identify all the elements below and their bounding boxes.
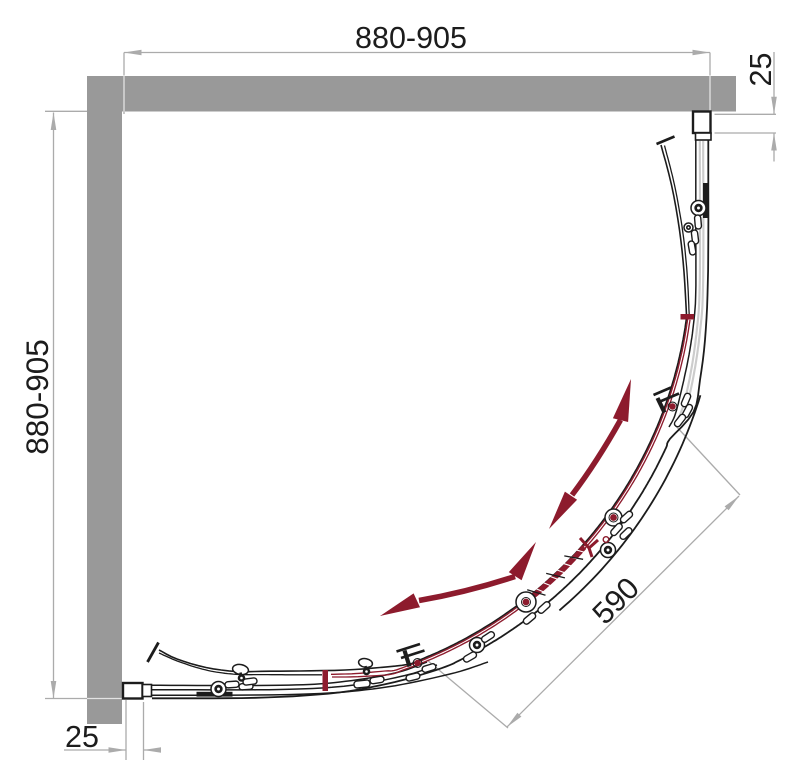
svg-text:25: 25 [65,720,99,754]
svg-text:25: 25 [744,53,778,87]
svg-text:880-905: 880-905 [19,339,55,455]
svg-text:880-905: 880-905 [355,21,467,55]
